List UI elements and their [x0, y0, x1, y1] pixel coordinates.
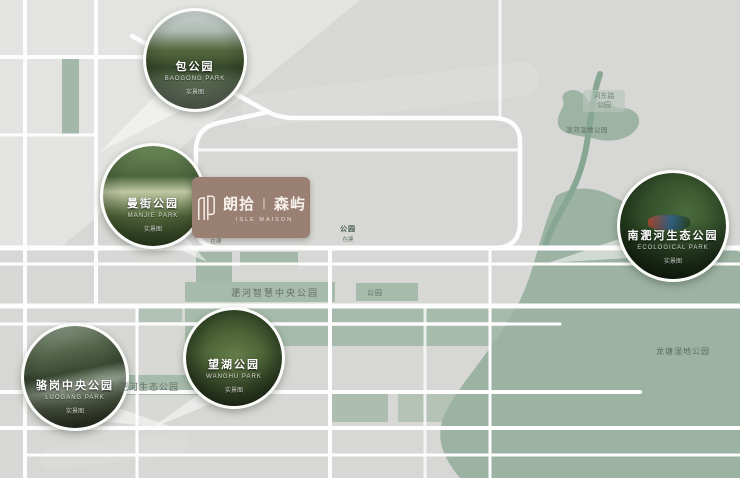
park-photo-tag: 实景图: [66, 406, 84, 415]
park-name-en: LUOGANG PARK: [45, 395, 105, 401]
park-photo-tag: 实景图: [144, 224, 162, 233]
label-mini-park: 公园: [367, 288, 383, 298]
label-longtang-wetland-park: 龙塘湿地公园: [656, 346, 710, 357]
project-badge: 朗拾 丨 森屿 ISLE MAISON: [192, 177, 310, 238]
park-name: 曼街公园: [127, 195, 179, 211]
park-photo-tag: 实景图: [225, 385, 243, 394]
project-name-right: 森屿: [274, 193, 306, 214]
project-name-divider: 丨: [258, 195, 271, 212]
park-callout-nanfeihe: 南淝河生态公园 ECOLOGICAL PARK 实景图: [617, 170, 729, 282]
park-callout-manjie: 曼街公园 MANJIE PARK 实景图: [100, 143, 206, 249]
label-feihe-eco-park: 淝河生态公园: [119, 380, 179, 393]
label-hedong-line1: 河东路: [583, 92, 625, 101]
label-hedong-park: 河东路 公园: [583, 90, 625, 112]
green-band-mini: [356, 283, 418, 301]
park-callout-baogong: 包公园 BAOGONG PARK 实景图: [143, 8, 247, 112]
park-patch-sub: 在建: [329, 235, 367, 243]
park-patch-right: 公园 在建: [329, 224, 367, 243]
label-feihe-smart-central-park: 淝河智慧中央公园: [231, 286, 319, 299]
park-name: 望湖公园: [208, 356, 260, 372]
label-hedong-line2: 公园: [583, 101, 625, 110]
park-name: 南淝河生态公园: [628, 227, 719, 243]
label-wetland-park: 滨河湿地公园: [566, 124, 608, 134]
park-photo-tag: 实景图: [186, 87, 204, 96]
park-name-en: MANJIE PARK: [128, 213, 179, 219]
location-map: 淝河智慧中央公园 淝河生态公园 龙塘湿地公园 滨河湿地公园 公园 河东路 公园 …: [0, 0, 740, 478]
park-name-en: BAOGONG PARK: [165, 76, 226, 82]
park-patch-title: 公园: [329, 224, 367, 234]
park-name: 骆岗中央公园: [36, 377, 114, 393]
park-name-en: ECOLOGICAL PARK: [637, 245, 708, 251]
project-name-en: ISLE MAISON: [236, 217, 293, 223]
project-logo-icon: [196, 194, 216, 222]
park-callout-luogang: 骆岗中央公园 LUOGANG PARK 实景图: [21, 323, 129, 431]
project-name-left: 朗拾: [223, 193, 255, 214]
park-photo-tag: 实景图: [664, 256, 682, 265]
park-name: 包公园: [176, 58, 215, 74]
park-callout-wanghu: 望湖公园 WANGHU PARK 实景图: [183, 307, 285, 409]
park-name-en: WANGHU PARK: [206, 374, 262, 380]
project-name: 朗拾 丨 森屿 ISLE MAISON: [223, 193, 306, 223]
